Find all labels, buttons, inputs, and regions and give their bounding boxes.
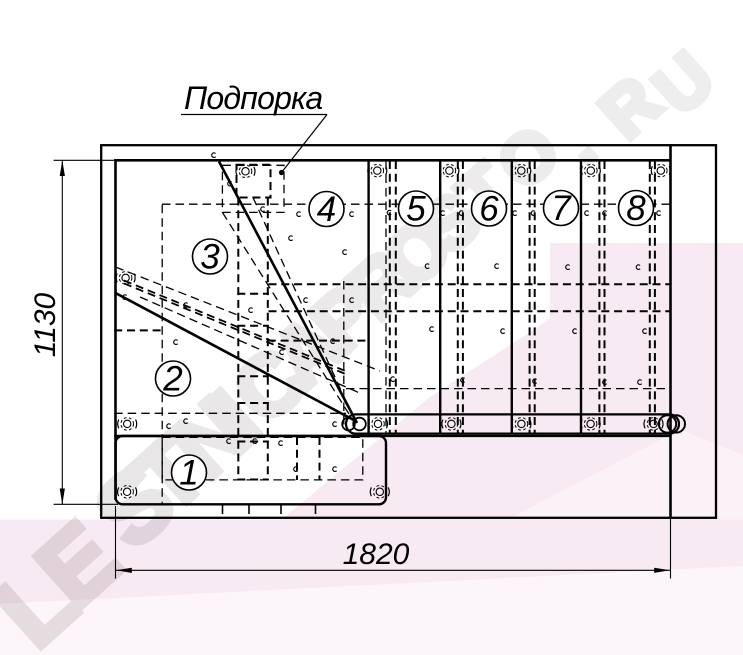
svg-text:8: 8 <box>626 189 646 228</box>
svg-text:6: 6 <box>479 190 499 229</box>
svg-text:2: 2 <box>162 360 182 399</box>
svg-text:1130: 1130 <box>29 292 62 357</box>
svg-text:1: 1 <box>179 454 198 493</box>
svg-text:3: 3 <box>200 238 220 277</box>
svg-text:4: 4 <box>317 190 336 229</box>
svg-text:5: 5 <box>406 190 426 229</box>
svg-text:7: 7 <box>551 189 572 228</box>
svg-text:Подпорка: Подпорка <box>184 80 322 116</box>
